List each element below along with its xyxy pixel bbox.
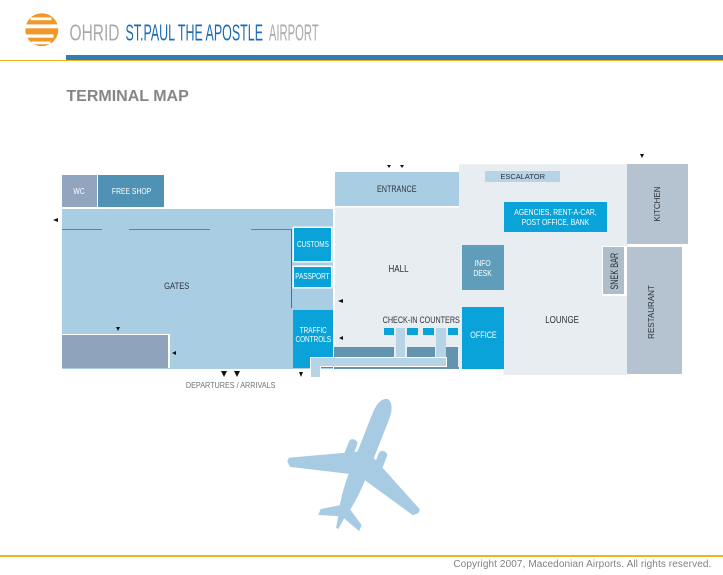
svg-text:OHRID: OHRID xyxy=(70,20,120,46)
svg-text:AIRPORT: AIRPORT xyxy=(269,20,319,46)
svg-text:ST.PAUL THE APOSTLE: ST.PAUL THE APOSTLE xyxy=(126,20,264,46)
